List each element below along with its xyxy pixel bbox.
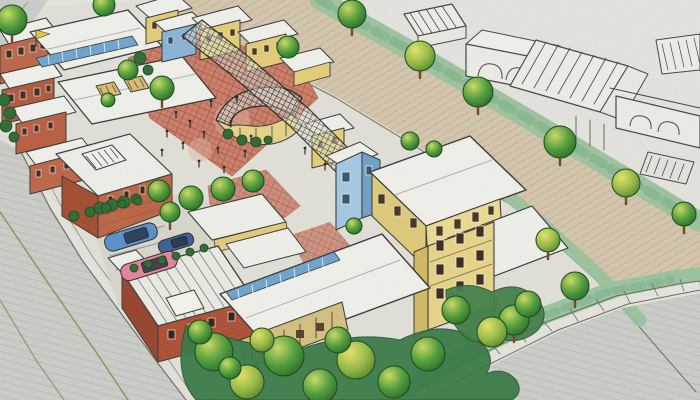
architectural-sketch-image (0, 0, 700, 400)
paper-grain-texture (0, 0, 700, 400)
sketch-canvas (0, 0, 700, 400)
